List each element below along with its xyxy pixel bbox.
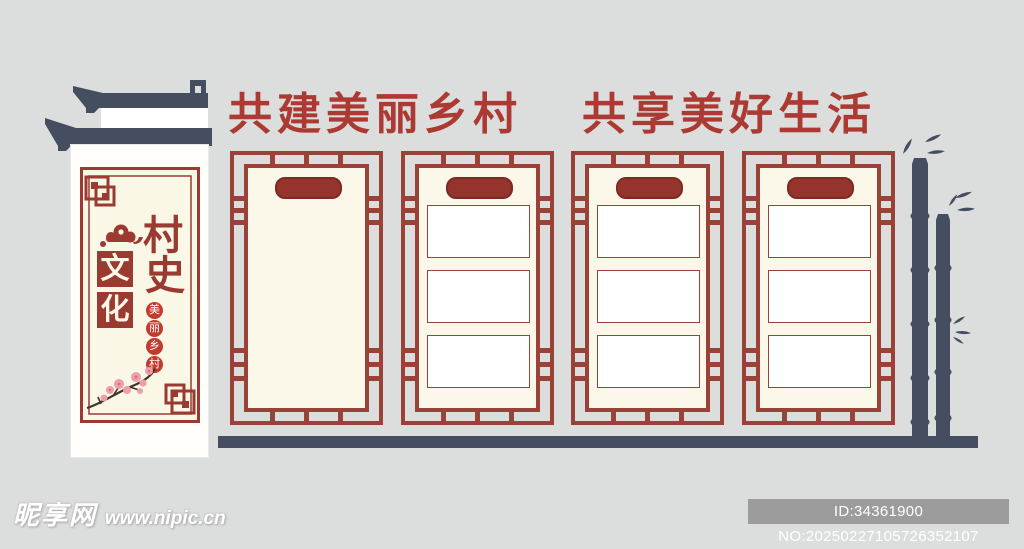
content-box [768,335,871,388]
content-box [427,335,530,388]
plum-blossom-icon [85,362,157,412]
content-box [597,335,700,388]
bamboo-icon [895,126,1005,448]
content-box [427,270,530,323]
sign-block-char-2: 化 [97,292,133,328]
sign-block-char-1: 文 [97,251,133,287]
content-box [427,205,530,258]
display-panel-4 [742,151,895,425]
sign-badge-char-3: 乡 [146,338,163,355]
sign-title-char-2: 史 [145,256,185,296]
banner-title: 共建美丽乡村共享美好生活 [228,90,928,142]
panel-plaque [446,177,513,199]
roof-upper-eave-icon [40,78,210,114]
display-panel-2 [401,151,554,425]
content-box [597,205,700,258]
sign-badge-char-1: 美 [146,302,163,319]
sign-title-char-1: 村 [143,216,183,256]
watermark-site-url: www.nipic.cn [105,508,226,529]
cloud-icon [98,220,144,250]
baseline-bar [218,436,978,448]
content-box [768,205,871,258]
content-box [597,270,700,323]
banner-phrase-2: 共享美好生活 [582,90,876,139]
image-id-badge: ID:34361900 NO:20250227105726352107 [748,499,1009,524]
banner-phrase-1: 共建美丽乡村 [228,90,522,139]
panel-plaque [787,177,854,199]
content-box [768,270,871,323]
display-panel-1 [230,151,383,425]
watermark-site-name: 昵享网 [13,500,97,530]
panel-frame-inner [244,164,369,412]
sign-badge-char-2: 丽 [146,320,163,337]
display-panel-3 [571,151,724,425]
panel-plaque [616,177,683,199]
watermark: 昵享网www.nipic.cn [13,495,226,532]
panel-plaque [275,177,342,199]
